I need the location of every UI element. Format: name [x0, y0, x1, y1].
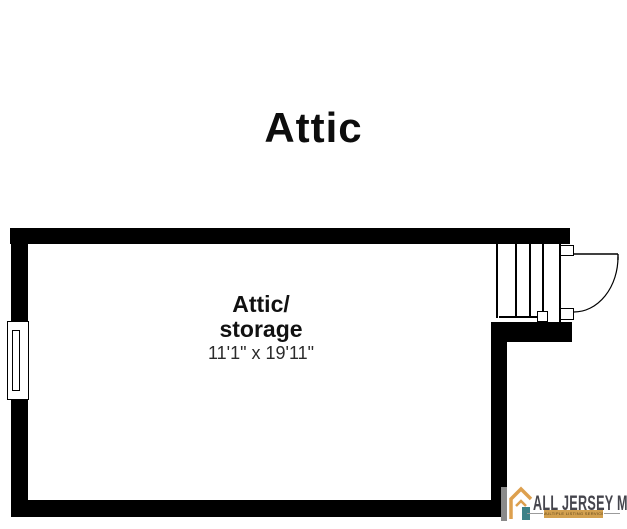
room-name-line1: Attic/: [111, 292, 411, 317]
stair-tread-line: [542, 244, 544, 318]
stair-tread-line: [515, 244, 517, 318]
stairs-handrail: [499, 316, 541, 318]
wall-top: [10, 228, 570, 244]
house-inner-roof: [516, 501, 526, 506]
wall-left-upper: [11, 228, 28, 322]
stairs-newel-post: [537, 311, 548, 322]
door-swing-arc: [574, 257, 618, 312]
room-label: Attic/ storage 11'1" x 19'11": [111, 292, 411, 363]
tagline-text: MULTIPLE LISTING SERVICE: [544, 512, 603, 516]
logo-tagline: MULTIPLE LISTING SERVICE: [527, 509, 620, 518]
tagline-rule-left: [527, 513, 543, 515]
wall-bottom: [11, 500, 507, 517]
stair-tread-line: [529, 244, 531, 318]
stairs-edge-left: [496, 244, 498, 318]
tagline-bar: MULTIPLE LISTING SERVICE: [544, 510, 603, 518]
window-glass: [12, 330, 20, 391]
tagline-rule-right: [604, 513, 620, 515]
room-dimensions: 11'1" x 19'11": [111, 343, 411, 363]
door-swing-symbol: [560, 244, 622, 316]
floorplan-canvas: Attic Attic/ storage 11'1" x 19'11" ALL …: [0, 0, 627, 529]
plan-title: Attic: [0, 104, 627, 152]
room-name-line2: storage: [111, 317, 411, 342]
wall-stair-bottom: [491, 322, 572, 342]
logo-gray-bar: [501, 487, 507, 521]
